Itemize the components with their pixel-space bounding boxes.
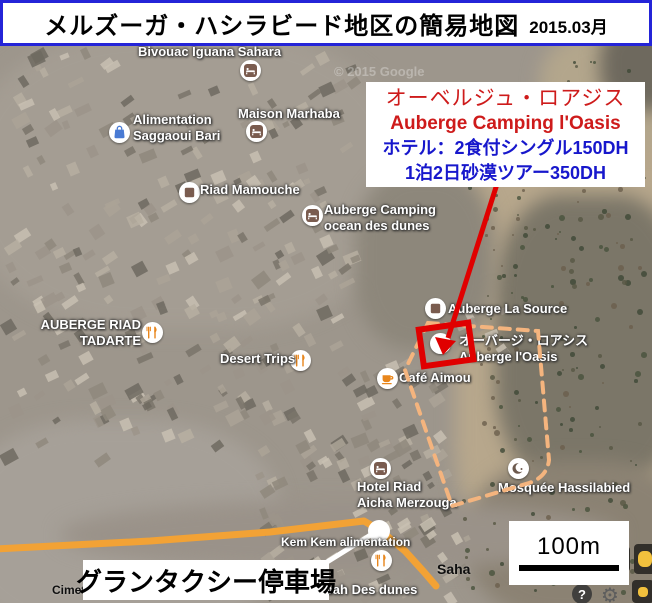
taxi-stand-label: グランタクシー停車場: [76, 562, 336, 599]
imagery-button[interactable]: [634, 544, 652, 574]
hotel-price-line: ホテル：2食付シングル150DH: [382, 136, 628, 161]
map-screenshot: Bivouac Iguana SaharaAlimentationSaggaou…: [0, 0, 652, 603]
hotel-name-ja: オーベルジュ・ロアジス: [386, 86, 626, 111]
help-button[interactable]: ?: [572, 584, 592, 603]
settings-gear-icon[interactable]: ⚙: [601, 583, 619, 603]
scale-box: 100m: [509, 521, 629, 585]
title-date: 2015.03月: [529, 13, 607, 38]
page-title: メルズーガ・ハシラビード地区の簡易地図: [44, 6, 519, 41]
scale-label: 100m: [537, 533, 601, 561]
hotel-name-en: Auberge Camping l'Oasis: [390, 111, 620, 136]
hotel-annotation-box: オーベルジュ・ロアジス Auberge Camping l'Oasis ホテル：…: [366, 82, 645, 187]
corner-button[interactable]: [632, 580, 652, 603]
taxi-stand-callout: グランタクシー停車場: [83, 560, 329, 600]
title-bar: メルズーガ・ハシラビード地区の簡易地図 2015.03月: [0, 0, 652, 46]
tour-price-line: 1泊2日砂漠ツアー350DH: [405, 161, 606, 186]
scale-bar: [519, 565, 619, 571]
